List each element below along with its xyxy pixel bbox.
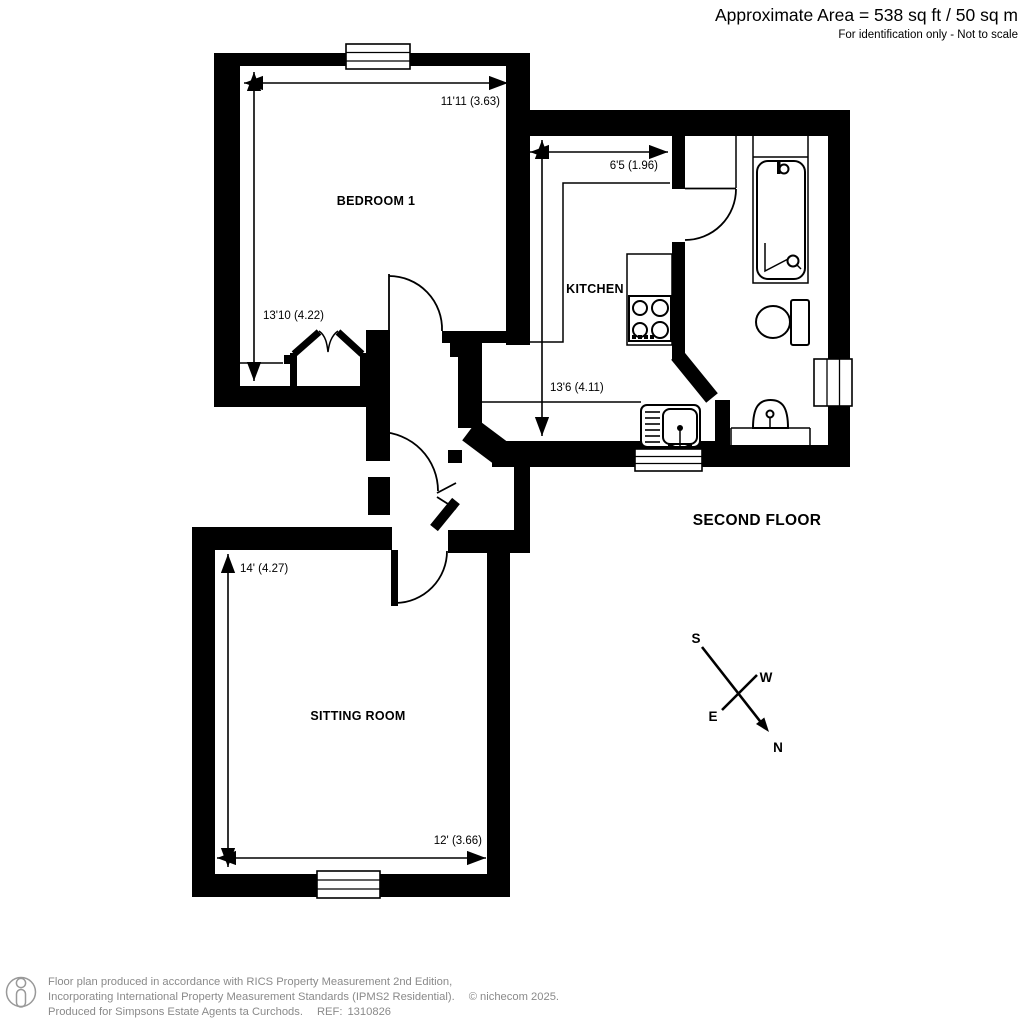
copyright-text: © nichecom 2025.: [469, 991, 559, 1003]
compass-n: N: [773, 740, 783, 755]
compass-w: W: [760, 670, 773, 685]
compass-s: S: [691, 631, 700, 646]
disclaimer-text: For identification only - Not to scale: [838, 29, 1018, 41]
bathroom-window: [814, 359, 852, 406]
bathtub: [753, 134, 808, 283]
footer-line2: Incorporating International Property Mea…: [48, 991, 559, 1003]
bedroom-door: [389, 274, 442, 331]
bedroom-label: BEDROOM 1: [337, 194, 415, 208]
bathroom-fixtures: [731, 134, 810, 445]
sitting-room-window: [317, 871, 380, 898]
toilet: [756, 300, 809, 345]
kitchen-width-dim: 6'5 (1.96): [610, 160, 658, 172]
dimension-arrows: [217, 72, 668, 867]
bathroom-door: [685, 134, 736, 240]
bedroom-window: [346, 44, 410, 69]
ref-number: 1310826: [347, 1006, 391, 1018]
nichecom-logo-icon: [7, 978, 36, 1008]
floorplan-canvas: Approximate Area = 538 sq ft / 50 sq m F…: [0, 0, 1024, 1020]
kitchen-label: KITCHEN: [566, 282, 624, 296]
hob: [629, 296, 671, 341]
sitting-room-door: [391, 550, 447, 606]
footer-line1: Floor plan produced in accordance with R…: [48, 976, 452, 988]
compass-e: E: [708, 709, 717, 724]
bedroom-width-dim: 11'11 (3.63): [441, 96, 500, 108]
kitchen-window: [635, 449, 702, 471]
footer-line3: Produced for Simpsons Estate Agents ta C…: [48, 1006, 391, 1018]
walls: [192, 53, 850, 897]
footer: Floor plan produced in accordance with R…: [7, 976, 560, 1018]
kitchen-height-dim: 13'6 (4.11): [550, 382, 604, 394]
fireplace: [240, 331, 373, 387]
kitchen-fixtures: [470, 183, 700, 449]
ref-label: REF:: [317, 1006, 342, 1018]
sitting-room-label: SITTING ROOM: [310, 709, 405, 723]
basin: [731, 400, 810, 445]
approximate-area-text: Approximate Area = 538 sq ft / 50 sq m: [715, 5, 1018, 25]
bedroom-height-dim: 13'10 (4.22): [263, 310, 324, 322]
entry-door: [380, 432, 456, 509]
sink: [641, 405, 700, 449]
sitting-room-width-dim: 12' (3.66): [434, 835, 482, 847]
floor-title: SECOND FLOOR: [693, 512, 821, 529]
sitting-room-height-dim: 14' (4.27): [240, 563, 288, 575]
floorplan-page: Approximate Area = 538 sq ft / 50 sq m F…: [0, 0, 1024, 1020]
compass: S W E N: [691, 631, 782, 755]
